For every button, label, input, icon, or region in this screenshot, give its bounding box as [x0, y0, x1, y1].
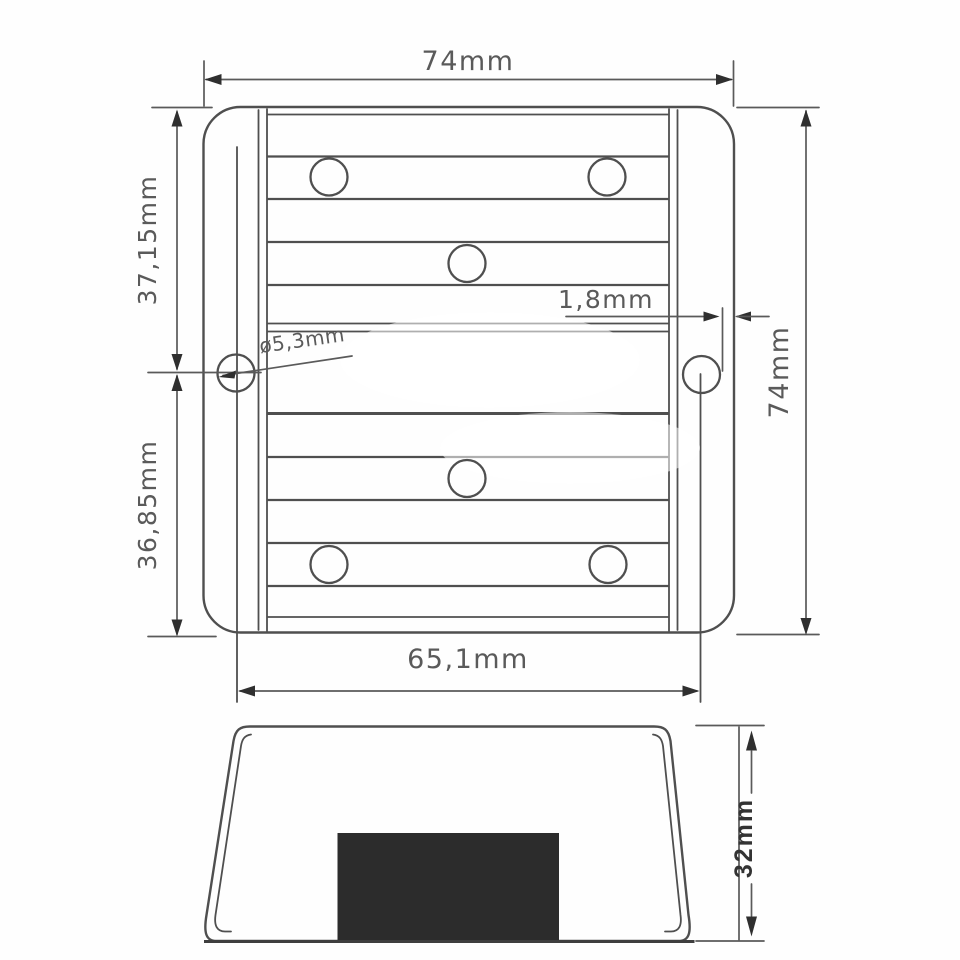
dimension-hole-diameter: ø5,3mm [219, 322, 353, 378]
mounting-hole [589, 159, 626, 196]
mounting-hole [311, 159, 348, 196]
arrow-up [746, 731, 757, 751]
arrow-left [205, 74, 222, 85]
dim-label-hole-diameter: ø5,3mm [258, 322, 347, 358]
arrow-down [172, 354, 183, 371]
dim-label-wall-thickness: 1,8mm [558, 285, 654, 314]
flange-hole-right [683, 356, 720, 393]
arrow-down [172, 620, 183, 637]
dim-label-hole-spacing: 65,1mm [407, 644, 529, 675]
dimension-overall-height: 74mm [737, 108, 819, 636]
top-view: 74mm 37,15mm 36,85mm 74mm [133, 46, 819, 702]
arrow-right [716, 74, 733, 85]
side-view: 32mm [204, 726, 764, 942]
arrow-right [683, 686, 700, 697]
watermark-smudge [340, 312, 640, 408]
right-wall-inner-line [653, 735, 681, 932]
left-wall-inner-line [215, 735, 251, 932]
dim-label-upper-section: 37,15mm [133, 175, 162, 306]
dimension-upper-section: 37,15mm [133, 108, 261, 373]
mounting-hole [311, 546, 348, 583]
arrow-down [801, 618, 812, 635]
arrow-up [801, 110, 812, 127]
dim-label-side-height: 32mm [730, 798, 758, 878]
technical-drawing: 74mm 37,15mm 36,85mm 74mm [0, 0, 960, 960]
leader-line [223, 356, 352, 376]
dimension-hole-spacing: 65,1mm [238, 644, 700, 697]
dimension-side-height: 32mm [696, 726, 764, 942]
mounting-hole [590, 546, 627, 583]
dimension-overall-width: 74mm [204, 46, 734, 106]
arrow-up [172, 374, 183, 391]
mounting-hole [449, 245, 486, 282]
drawing-canvas: 74mm 37,15mm 36,85mm 74mm [0, 0, 960, 960]
connector-block [338, 833, 560, 941]
dim-label-lower-section: 36,85mm [133, 440, 162, 571]
arrow-down [746, 917, 757, 937]
watermark-smudge [440, 412, 700, 484]
dim-label-overall-height: 74mm [764, 326, 795, 419]
arrow-right [704, 312, 720, 322]
arrow-left [238, 686, 255, 697]
arrow-up [172, 110, 183, 127]
dim-label-overall-width: 74mm [422, 46, 515, 77]
